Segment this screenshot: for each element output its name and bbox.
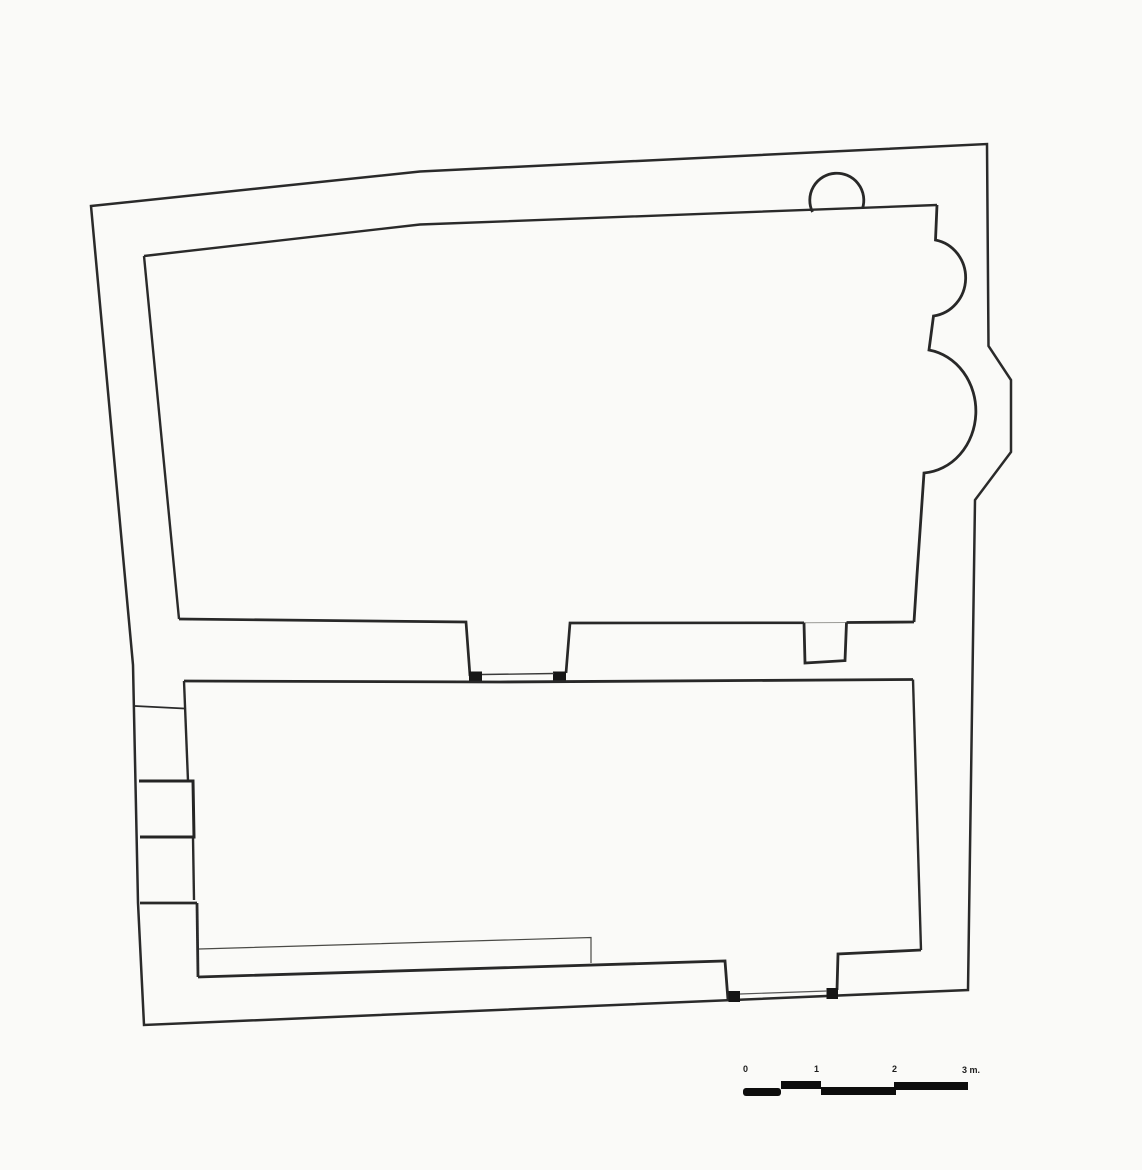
svg-text:1: 1 [814,1064,819,1074]
svg-text:2: 2 [892,1064,897,1074]
svg-text:0: 0 [743,1064,748,1074]
svg-text:3 m.: 3 m. [962,1065,980,1075]
